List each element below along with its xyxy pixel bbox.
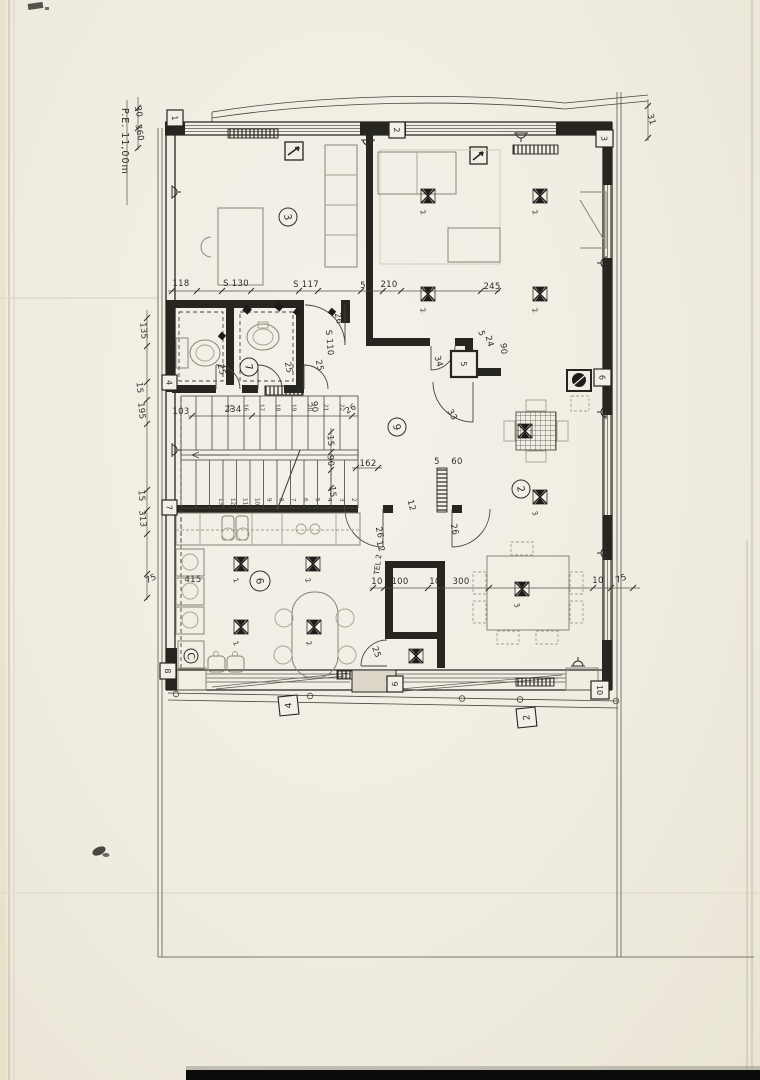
- room-number-label: 3: [281, 213, 293, 221]
- dimension-label: 30: [132, 105, 144, 118]
- flue-symbol: [567, 370, 591, 411]
- stair-step-number: 6: [302, 498, 308, 502]
- light-circuit-label: 2: [304, 640, 313, 647]
- axis-marker-label: 10: [595, 685, 604, 695]
- dimension-label: 100: [391, 577, 408, 587]
- light-circuit-label: 1: [231, 577, 240, 584]
- axis-marker-label: 8: [163, 668, 172, 673]
- stair-direction-arrow: [192, 452, 230, 458]
- dimension-label: 15: [134, 382, 145, 394]
- light-circuit-label: 2: [418, 307, 427, 314]
- stair-step-number: 11: [241, 498, 247, 506]
- stair-step-number: 9: [265, 498, 271, 502]
- dimension-label: 10: [592, 576, 603, 586]
- dimension-label: 360: [133, 123, 146, 142]
- stair-step-number: 19: [290, 404, 296, 412]
- dimension-label: 60: [451, 457, 462, 467]
- room-number-label: 9: [390, 423, 402, 431]
- dimension-label: 210: [380, 280, 397, 290]
- axis-marker-label: 4: [164, 380, 173, 385]
- dimension-label: S 130: [223, 279, 249, 289]
- north-arrow-box: [285, 142, 487, 164]
- axis-marker-label: 9: [390, 681, 399, 686]
- dimension-label: 195: [135, 402, 146, 420]
- axis-marker-label: 6: [597, 375, 606, 380]
- dimension-label: S 110: [323, 330, 335, 357]
- dimension-label: 75: [614, 572, 628, 585]
- stair-step-number: 10: [253, 498, 259, 506]
- stair-step-number: 18: [274, 404, 280, 412]
- outlet-icon: [172, 185, 181, 199]
- stair-step-number: 12: [229, 498, 235, 506]
- dimension-label: 118: [172, 279, 189, 289]
- axis-marker-label: 3: [599, 136, 608, 141]
- stair-step-number: 5: [314, 498, 320, 502]
- stair-step-number: 8: [278, 498, 284, 502]
- room-number-label: C: [184, 652, 196, 661]
- dimension-label: 10: [429, 577, 440, 587]
- dimension-label: 162: [359, 459, 376, 469]
- axis-marker-label: 5: [459, 361, 468, 366]
- dimension-label: 12: [405, 499, 418, 513]
- stair-step-number: 13: [217, 498, 223, 506]
- dimension-label: 103: [172, 407, 189, 417]
- dimension-label: 135: [137, 322, 148, 340]
- axis-marker-label: 1: [170, 115, 179, 120]
- dimension-label: 33: [445, 408, 459, 423]
- dimension-label: 31: [645, 113, 658, 127]
- reference-marker-label: 2: [522, 714, 533, 721]
- light-circuit-label: 2: [530, 307, 539, 314]
- dimension-label: 12: [374, 540, 387, 554]
- telephone-label: TEL 2: [372, 553, 384, 576]
- stair-step-number: 16: [242, 404, 248, 412]
- stair-step-number: 3: [338, 498, 344, 502]
- light-circuit-label: 3: [530, 510, 539, 517]
- dimension-label: 24: [483, 335, 496, 349]
- dimension-label: 234: [224, 405, 241, 415]
- light-circuit-label: 3: [512, 602, 521, 609]
- light-circuit-label: 2: [418, 209, 427, 216]
- canopy-arcs: [212, 95, 648, 122]
- axis-marker-label: 7: [164, 505, 173, 510]
- dimension-label: 26: [373, 526, 385, 539]
- stair-step-number: 17: [258, 404, 264, 412]
- sill-lines: [168, 691, 619, 708]
- dimension-label: S 117: [293, 280, 319, 290]
- dimension-label: 26: [332, 312, 344, 325]
- dimension-label: 26: [344, 402, 359, 416]
- room-number-label: 2: [514, 485, 526, 493]
- dimension-label: 34: [432, 355, 445, 369]
- dimension-label: 25: [215, 363, 227, 376]
- light-circuit-label: 2: [303, 577, 312, 584]
- dimension-label: 25: [282, 361, 294, 374]
- stair-step-number: 21: [322, 404, 328, 412]
- stair-step-number: 4: [326, 498, 332, 502]
- doors: [216, 305, 490, 666]
- dimension-label: 300: [452, 577, 469, 587]
- dimension-label: 5: [434, 457, 440, 467]
- site-elevation-label: P.E. 11,00m: [119, 108, 130, 175]
- floor-plan-drawing: 15161718192021221312111098765432 2222121…: [0, 0, 760, 1080]
- light-circuit-label: 2: [530, 209, 539, 216]
- room-number-label: 6: [253, 577, 265, 585]
- dimension-label: 5: [360, 281, 366, 291]
- dimension-label: 90: [309, 401, 320, 413]
- dimension-label: 25: [369, 645, 382, 659]
- dimension-label: 245: [483, 282, 500, 292]
- stair-step-number: 2: [350, 498, 356, 502]
- dimension-label: 25: [313, 359, 325, 372]
- scanned-floor-plan-sheet: 15161718192021221312111098765432 2222121…: [0, 0, 760, 1080]
- dimension-label: 313: [136, 510, 147, 528]
- dimension-label: 15: [325, 435, 336, 447]
- room-number-label: 7: [242, 363, 254, 371]
- dimension-label: 90: [498, 343, 509, 355]
- dimension-label: 415: [184, 575, 201, 585]
- axis-marker-label: 2: [392, 127, 401, 132]
- outlet-icon: [571, 657, 585, 666]
- dimension-label: 15: [136, 490, 147, 502]
- scan-edge-bar: [186, 1070, 760, 1080]
- outlet-icon: [172, 443, 181, 457]
- dimension-label: 15: [327, 486, 338, 498]
- dimension-label: 10: [371, 577, 382, 587]
- dimension-label: 26: [448, 523, 460, 536]
- dimension-label: 90: [325, 455, 336, 467]
- light-circuit-label: 1: [231, 640, 240, 647]
- stair-step-number: 7: [290, 498, 296, 502]
